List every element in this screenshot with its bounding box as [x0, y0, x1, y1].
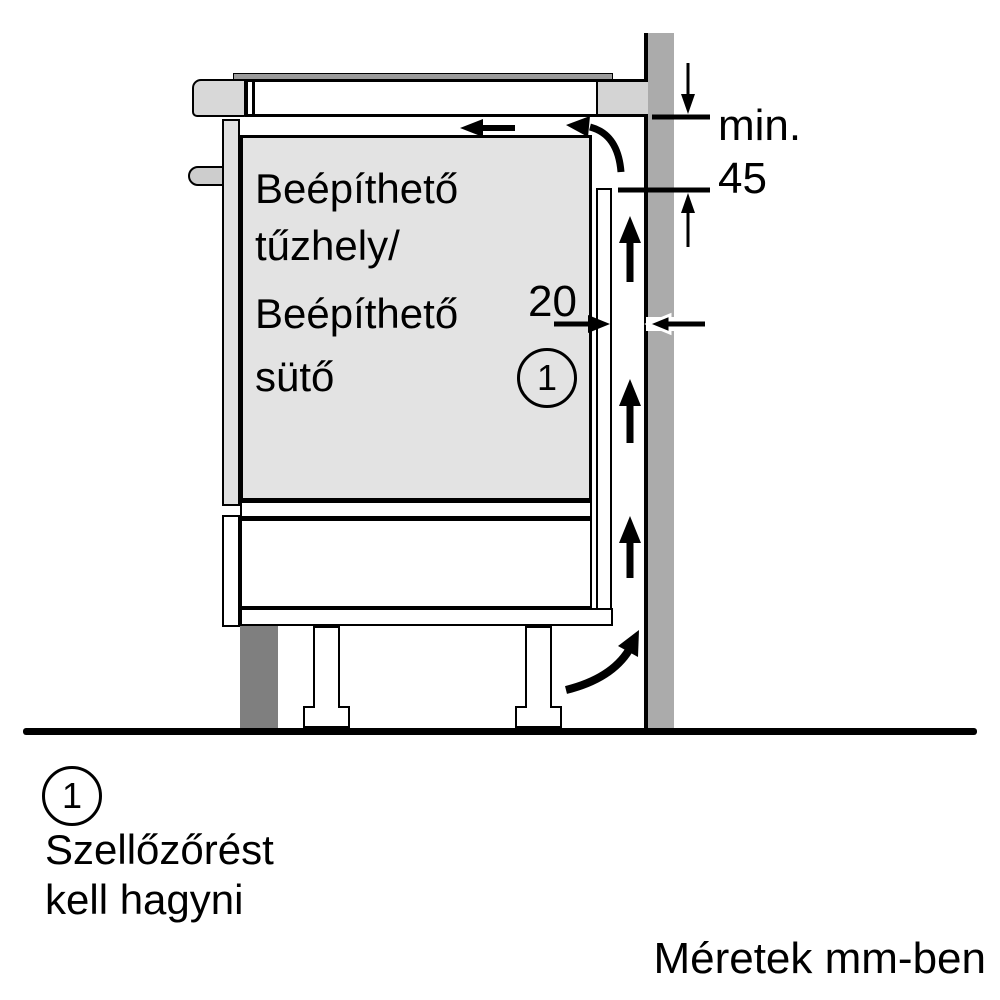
- callout-1-badge: 1: [517, 348, 577, 408]
- installation-diagram: Beépíthető tűzhely/ Beépíthető sütő 20 1…: [0, 0, 1000, 1000]
- callout-1-number: 1: [537, 357, 557, 399]
- dim-min45-marks: [618, 63, 710, 247]
- legend-line-2: kell hagyni: [45, 875, 274, 925]
- appliance-label-top: Beépíthető tűzhely/: [255, 160, 458, 274]
- dim-gap20-left-arrow: [646, 315, 708, 333]
- airflow-curve-top-icon: [566, 116, 621, 172]
- appliance-label-line-2: tűzhely/: [255, 217, 458, 274]
- legend-line-1: Szellőzőrést: [45, 825, 274, 875]
- legend-1-badge: 1: [42, 766, 102, 826]
- airflow-arrow-left-icon: [460, 119, 515, 137]
- airflow-arrow-up-1-icon: [619, 216, 641, 282]
- legend-1-number: 1: [62, 775, 82, 817]
- gap-dimension-value: 20: [528, 280, 577, 324]
- appliance-label-line-1: Beépíthető: [255, 160, 458, 217]
- legend-text: Szellőzőrést kell hagyni: [45, 825, 274, 925]
- airflow-arrow-up-3-icon: [619, 516, 641, 578]
- appliance-label-bottom: Beépíthető sütő: [255, 282, 458, 408]
- airflow-curve-bottom-icon: [566, 630, 639, 690]
- airflow-arrow-up-2-icon: [619, 379, 641, 443]
- units-note: Méretek mm-ben: [653, 937, 986, 981]
- min-dimension-value: 45: [718, 157, 767, 201]
- appliance-label-line-3: Beépíthető: [255, 282, 458, 345]
- min-dimension-label: min.: [718, 104, 801, 148]
- appliance-label-line-4: sütő: [255, 345, 458, 408]
